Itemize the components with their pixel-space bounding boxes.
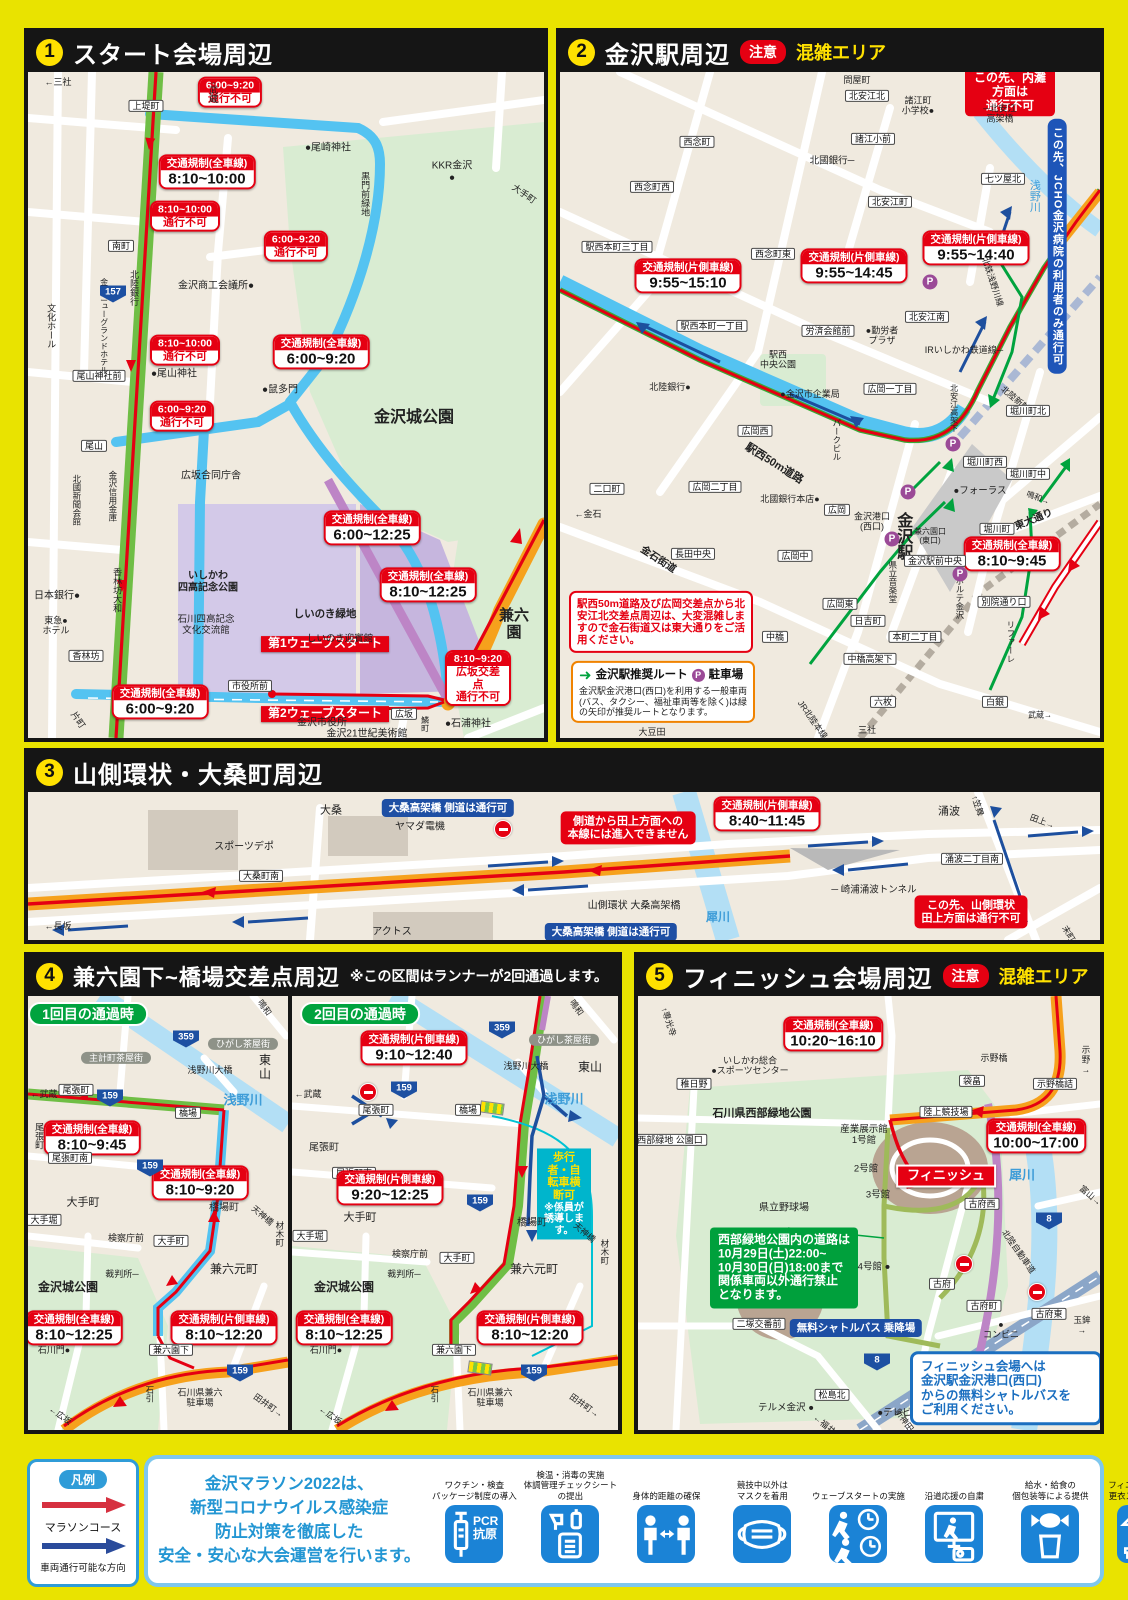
road-sign: 大桑町南 xyxy=(239,870,283,882)
place-label-rotated: 東大通り xyxy=(1013,507,1054,533)
place-label: アクトス xyxy=(372,926,412,938)
place-label-rotated: 武蔵→ xyxy=(1028,710,1052,719)
road-sign: 広岡中 xyxy=(777,550,812,562)
road-sign: 袋畠 xyxy=(959,1075,985,1087)
road-sign: 白銀 xyxy=(982,696,1008,708)
panel-number-badge: 2 xyxy=(568,39,595,66)
covid-measures-list: ワクチン・検査 パッケージ制度の導入PCR 抗原検温・消毒の実施 体調管理チェッ… xyxy=(426,1480,1128,1563)
road-sign: 古府 xyxy=(929,1278,955,1290)
regulation-label: 交通規制(片側車線)9:55~14:45 xyxy=(801,248,908,283)
place-label-rotated: 末町 xyxy=(1060,924,1077,940)
crosswalk-icon xyxy=(467,1360,492,1375)
place-label: 石川県兼六 駐車場 xyxy=(177,1388,222,1409)
place-label-vertical: 石引 xyxy=(144,1386,154,1403)
place-label: 東山 xyxy=(254,1054,277,1082)
covid-message: 金沢マラソン2022は、 新型コロナウイルス感染症 防止対策を徹底した 安全・安… xyxy=(158,1473,420,1569)
place-label-rotated: 鳴和 xyxy=(255,998,273,1018)
road-sign: 広岡東 xyxy=(822,598,857,610)
road-sign: 七ツ屋北 xyxy=(981,173,1025,185)
road-sign: 広岡一丁目 xyxy=(863,383,916,395)
regulation-label: 交通規制(全車線)8:10~12:25 xyxy=(380,567,477,602)
road-sign: 別院通り口 xyxy=(977,596,1030,608)
place-label: 石川県兼六 駐車場 xyxy=(467,1388,512,1409)
place-label: 犀川 xyxy=(706,911,730,925)
covid-measure-item: 検温・消毒の実施 体調管理チェックシートの提出 xyxy=(522,1480,618,1563)
road-sign: 上堤町 xyxy=(128,100,163,112)
road-sign: 大手町 xyxy=(439,1252,474,1264)
closure-label: 6:00~9:20通行不可 xyxy=(150,401,214,432)
place-label: 大手町 xyxy=(344,1212,377,1225)
place-label: テルメ金沢 ● xyxy=(758,1404,814,1415)
place-label-rotated: 富山→ xyxy=(1077,1184,1100,1208)
place-label-vertical: 尾張町 xyxy=(34,1123,44,1150)
second-pass-map: 2回目の通過時交通規制(片側車線)9:10~12:40ひがし茶屋街359浅野川大… xyxy=(292,996,618,1430)
area-pill: ひがし茶屋街 xyxy=(529,1034,599,1046)
place-label-rotated: 田井町→ xyxy=(251,1392,284,1420)
closure-label: 8:10~9:20広坂交差点 通行不可 xyxy=(445,650,511,706)
no-entry-icon xyxy=(955,1255,973,1273)
measure-label: ワクチン・検査 パッケージ制度の導入 xyxy=(432,1480,517,1502)
regulation-label: 交通規制(全車線)6:00~9:20 xyxy=(112,684,209,719)
crosswalk-icon xyxy=(479,1100,504,1115)
panel-header: 4 兼六園下~橋場交差点周辺 ※この区間はランナーが2回通過します。 xyxy=(28,956,618,996)
place-label: 大手町 xyxy=(67,1197,100,1210)
place-label: ─北安江 高架橋 xyxy=(983,104,1016,125)
place-label: 北國銀行本店● xyxy=(760,494,819,504)
place-label: 金沢市役所 xyxy=(297,717,347,729)
route-shield: 159 xyxy=(521,1365,547,1382)
panel-header: 5 フィニッシュ会場周辺 注意 混雑エリア xyxy=(638,956,1100,996)
place-label-vertical: 材木町 xyxy=(599,1239,609,1265)
road-sign: 大手町 xyxy=(153,1235,188,1247)
place-label: 山側環状 大桑高架橋 xyxy=(588,900,681,912)
route-shield: 159 xyxy=(227,1365,253,1382)
route-shield: 359 xyxy=(173,1031,199,1048)
area-pill: 主計町茶屋街 xyxy=(81,1052,151,1064)
hospital-access-ribbon: この先、JCHO金沢病院の利用者のみ通行可 xyxy=(1048,119,1067,374)
covid-measures-box: 金沢マラソン2022は、 新型コロナウイルス感染症 防止対策を徹底した 安全・安… xyxy=(144,1455,1104,1587)
route-shield: 159 xyxy=(467,1195,493,1212)
place-label-vertical: 県立音楽堂 xyxy=(887,561,897,604)
place-label: 浅野川大橋 xyxy=(187,1065,232,1075)
parking-icon: P xyxy=(946,437,961,452)
place-label-rotated: ↑笠舞 xyxy=(969,794,985,817)
okuwa-area-map: 大桑高架橋 側道は通行可側道から田上方面への 本線には進入できません交通規制(片… xyxy=(28,792,1100,940)
mask-icon xyxy=(733,1505,791,1563)
measure-label: フィニッシュエリア 更衣スペースの拡大 xyxy=(1108,1480,1128,1502)
place-label: しいのき緑地 xyxy=(294,608,357,620)
regulation-label: 交通規制(全車線)8:10~9:45 xyxy=(964,536,1061,571)
place-label-rotated: 鳴和→ xyxy=(1025,490,1051,507)
measure-label: 給水・給食の 個包装等による提供 xyxy=(1012,1480,1088,1502)
first-pass-map: 1回目の通過時主計町茶屋街359ひがし茶屋街浅野川大橋東山浅野川←武蔵尾張町15… xyxy=(28,996,288,1430)
place-label: 検察庁前 xyxy=(108,1233,144,1243)
place-label-vertical: ↑武蔵 xyxy=(208,81,218,104)
place-label: 大桑 xyxy=(320,805,342,818)
parking-icon: P xyxy=(953,567,968,582)
place-label: KKR金沢 ● xyxy=(432,161,473,184)
place-label-vertical: 浅野川 xyxy=(1028,180,1041,213)
map-annotations: ↑専光寺交通規制(全車線)10:20~16:10いしかわ総合 ●スポーツセンター… xyxy=(638,996,1100,1430)
regulation-label: 交通規制(片側車線)8:10~12:20 xyxy=(171,1310,278,1345)
shuttle-note-box: フィニッシュ会場へは 金沢駅金沢港口(西口) からの無料シャトルバスを ご利用く… xyxy=(910,1351,1100,1425)
station-area-map: この先、内灘方面は 通行不可この先、JCHO金沢病院の利用者のみ通行可交通規制(… xyxy=(560,72,1100,738)
no-entry-icon xyxy=(359,1083,377,1101)
covid-measure-item: 競技中以外は マスクを着用 xyxy=(714,1480,810,1563)
road-sign: 橋場 xyxy=(455,1104,481,1116)
place-label-rotated: 天神橋 xyxy=(249,1204,275,1228)
place-label: 県立野球場 xyxy=(759,1202,809,1214)
road-sign: 大手堀 xyxy=(292,1230,327,1242)
finish-label: フィニッシュ xyxy=(896,1165,996,1188)
place-label-vertical: 文化ホール xyxy=(46,304,56,349)
road-sign: 北安江北 xyxy=(845,90,889,102)
road-sign: 金沢駅前中央 xyxy=(904,555,966,567)
place-label: 橋場町 xyxy=(517,1217,547,1229)
road-sign: 市役所前 xyxy=(228,680,272,692)
place-label: 石川県西部緑地公園 xyxy=(713,1108,812,1121)
place-label: 東山 xyxy=(578,1061,602,1075)
place-label-vertical: リファーレ xyxy=(1005,621,1015,664)
regulation-label: 交通規制(全車線)8:10~9:45 xyxy=(44,1120,141,1155)
recommended-route-legend: ➜金沢駅推奨ルートP駐車場金沢駅金沢港口(西口)を利用する一般車両(バス、タクシ… xyxy=(571,661,755,723)
route-shield: 8 xyxy=(1036,1213,1062,1230)
panel-start-area: 1 スタート会場周辺 xyxy=(24,28,548,742)
regulation-label: 交通規制(全車線)6:00~12:25 xyxy=(324,510,421,545)
place-label-vertical: 石引 xyxy=(429,1386,439,1403)
place-label: 諸江町 小学校● xyxy=(902,96,934,117)
parking-icon: P xyxy=(692,669,705,682)
road-sign: 涌波二丁目南 xyxy=(941,853,1003,865)
panel-number-badge: 5 xyxy=(646,963,673,990)
area-pill: ひがし茶屋街 xyxy=(208,1038,278,1050)
note-box: 駅西50m道路及び広岡交差点から北安江北交差点周辺は、大変混雑しますので金石街道… xyxy=(569,591,753,653)
place-label: 犀川 xyxy=(1009,1169,1035,1184)
place-label-vertical: 北國新聞会館 xyxy=(71,475,81,526)
place-label: 浅野川 xyxy=(544,1093,583,1108)
check-icon xyxy=(541,1505,599,1563)
place-label: ヤマダ電機 xyxy=(395,821,445,833)
panel-title: 山側環状・大桑町周辺 xyxy=(73,755,323,790)
place-label-vertical: 北安江高架下 xyxy=(949,384,958,432)
road-sign: 香林坊 xyxy=(68,650,103,662)
place-label: 広坂合同庁舎 xyxy=(181,470,241,482)
place-label-rotated: 鳴和 xyxy=(567,998,585,1018)
road-sign: 堀川町北 xyxy=(1006,405,1050,417)
place-label: 涌波 xyxy=(938,806,960,819)
regulation-label: 交通規制(片側車線)8:10~12:20 xyxy=(477,1310,584,1345)
regulation-label: 交通規制(全車線)8:10~12:25 xyxy=(28,1310,122,1345)
panel-header: 1 スタート会場周辺 xyxy=(28,32,544,72)
road-sign: 陸上競技場 xyxy=(919,1106,972,1118)
road-sign: 駅西本町三丁目 xyxy=(581,241,652,253)
alert-box: 側道から田上方面への 本線には進入できません xyxy=(561,811,696,844)
place-label: IRいしかわ鉄道線─ xyxy=(925,345,1003,355)
map-annotations: 6:00~9:20通行不可交通規制(全車線)8:10~10:008:10~10:… xyxy=(28,72,544,738)
place-label-vertical: 材木町 xyxy=(274,1221,284,1247)
pass-count-label: 2回目の通過時 xyxy=(300,1002,420,1026)
place-label-rotated: ↑専光寺 xyxy=(659,1006,677,1037)
covid-measure-item: 給水・給食の 個包装等による提供 xyxy=(1002,1480,1098,1563)
regulation-label: 交通規制(片側車線)9:55~15:10 xyxy=(635,258,742,293)
place-label-vertical: 北陸銀行 xyxy=(129,270,139,306)
place-label: 三社 xyxy=(858,725,876,735)
map-annotations: 2回目の通過時交通規制(片側車線)9:10~12:40ひがし茶屋街359浅野川大… xyxy=(292,996,618,1430)
regulation-label: 交通規制(全車線)10:20~16:10 xyxy=(783,1016,883,1051)
place-label: 金沢21世紀美術館 xyxy=(326,728,407,738)
place-label: ●石浦神社 xyxy=(445,718,491,730)
place-label: 兼六園 xyxy=(499,607,529,642)
route-shield: 159 xyxy=(391,1082,417,1099)
place-label: 裁判所─ xyxy=(387,1269,420,1279)
covid-measure-item: ワクチン・検査 パッケージ制度の導入PCR 抗原 xyxy=(426,1480,522,1563)
road-sign: 古府町 xyxy=(966,1300,1001,1312)
place-label: 日本銀行● xyxy=(34,590,80,602)
road-sign: 二塚交番前 xyxy=(732,1318,785,1330)
place-label: ←三社 xyxy=(44,77,71,87)
place-label-rotated: ←広坂 xyxy=(317,1405,344,1428)
place-label: 北國銀行─ xyxy=(810,157,855,168)
place-label: しいのき迎賓館 xyxy=(307,635,373,646)
place-label: 大豆田 xyxy=(638,727,665,737)
place-label: 東急● ホテル xyxy=(42,616,69,637)
road-sign: 堀川町中 xyxy=(1006,468,1050,480)
regulation-label: 交通規制(全車線)8:10~9:20 xyxy=(152,1165,249,1200)
food-icon xyxy=(1021,1505,1079,1563)
place-label: 3号館 xyxy=(866,1191,890,1202)
place-label: 石川門● xyxy=(310,1345,342,1355)
place-label-vertical: 黒門前緑地 xyxy=(360,172,370,217)
road-sign: 六枚 xyxy=(870,696,896,708)
road-sign: 日吉町 xyxy=(850,615,885,627)
info-box-blue: 無料シャトルバス 乗降場 xyxy=(790,1319,922,1337)
panel-number-badge: 3 xyxy=(36,759,63,786)
panel-title: 金沢駅周辺 xyxy=(605,35,730,70)
place-label: いしかわ 四高記念公園 xyxy=(178,571,238,594)
place-label: ● コンビニ xyxy=(983,1320,1019,1341)
course-arrow-icon xyxy=(40,1497,126,1513)
road-sign: 広岡 xyxy=(824,504,850,516)
place-label-vertical: 金沢信用金庫 xyxy=(107,471,117,522)
place-label: 産業展示館 1号館 xyxy=(840,1125,888,1147)
road-sign: 本町二丁目 xyxy=(888,631,941,643)
road-sign: 広岡二丁目 xyxy=(688,481,741,493)
legend-vehicle-label: 車両通行可能な方向 xyxy=(30,1560,136,1574)
map-annotations: 1回目の通過時主計町茶屋街359ひがし茶屋街浅野川大橋東山浅野川←武蔵尾張町15… xyxy=(28,996,288,1430)
place-label-vertical: ポルテ金沢 xyxy=(954,577,964,620)
map-annotations: この先、内灘方面は 通行不可この先、JCHO金沢病院の利用者のみ通行可交通規制(… xyxy=(560,72,1100,738)
alert-box: この先、山側環状 田上方面は通行不可 xyxy=(915,895,1028,928)
place-label-rotated: 田井町→ xyxy=(567,1392,600,1420)
covid-measure-item: フィニッシュエリア 更衣スペースの拡大 xyxy=(1098,1480,1128,1563)
panel-note: ※この区間はランナーが2回通過します。 xyxy=(350,966,608,986)
info-box-green: 西部緑地公園内の道路は 10月29日(土)22:00~ 10月30日(日)18:… xyxy=(710,1228,858,1309)
measure-label: 身体的距離の確保 xyxy=(632,1480,700,1502)
road-sign: 尾山 xyxy=(81,440,107,452)
regulation-label: 交通規制(片側車線)8:40~11:45 xyxy=(714,796,821,831)
regulation-label: 交通規制(片側車線)9:55~14:40 xyxy=(923,230,1030,265)
place-label-vertical: パークビル xyxy=(831,419,841,462)
road-sign: 労済会館前 xyxy=(801,325,854,337)
place-label: ←長坂 xyxy=(44,921,71,931)
panel-number-badge: 4 xyxy=(36,963,63,990)
place-label: ●フォーラス xyxy=(953,487,1006,498)
road-sign: 尾張町南 xyxy=(48,1152,92,1164)
place-label: 尾張町 xyxy=(309,1142,339,1154)
road-sign: 広坂 xyxy=(391,708,417,720)
place-label: ●尾崎神社 xyxy=(305,142,351,154)
place-label-vertical: 香林坊大和 xyxy=(112,568,122,613)
place-label-rotated: 駅西50m道路 xyxy=(743,441,806,487)
no-entry-icon xyxy=(494,820,512,838)
road-sign: 二口町 xyxy=(589,483,624,495)
legend-title: 凡例 xyxy=(59,1470,107,1489)
distance-icon xyxy=(637,1505,695,1563)
road-sign: 大手堀 xyxy=(28,1214,62,1226)
place-label-vertical: 鱗町 xyxy=(420,716,429,732)
place-label: 裁判所─ xyxy=(105,1269,138,1279)
regulation-label: 交通規制(全車線)8:10~10:00 xyxy=(159,154,256,189)
place-label: 金沢城公園 xyxy=(38,1281,98,1295)
road-sign: 駅西本町一丁目 xyxy=(676,320,747,332)
place-label-rotated: 田上→ xyxy=(1028,813,1055,831)
place-label: 石川四高記念 文化交流館 xyxy=(177,615,234,637)
road-sign: 諸江小前 xyxy=(851,133,895,145)
place-label: 金沢城公園 xyxy=(374,409,454,427)
place-label: 浅野川大橋 xyxy=(503,1061,548,1071)
place-label: 金沢城公園 xyxy=(314,1281,374,1295)
panel-finish-area: 5 フィニッシュ会場周辺 注意 混雑エリア xyxy=(634,952,1104,1434)
place-label: ←金石 xyxy=(574,509,601,519)
road-sign: 松島北 xyxy=(814,1389,849,1401)
regulation-label: 交通規制(全車線)6:00~9:20 xyxy=(273,334,370,369)
congestion-badge: 混雑エリア xyxy=(796,39,886,65)
wave-icon xyxy=(829,1505,887,1563)
place-label: スポーツデポ xyxy=(214,841,274,853)
map-annotations: 大桑高架橋 側道は通行可側道から田上方面への 本線には進入できません交通規制(片… xyxy=(28,792,1100,940)
place-label: 金沢港口 (西口) xyxy=(854,512,890,533)
panel-header: 2 金沢駅周辺 注意 混雑エリア xyxy=(560,32,1100,72)
place-label: いしかわ総合 ●スポーツセンター xyxy=(711,1056,788,1077)
area-icon xyxy=(1117,1505,1128,1563)
green-arrow-icon: ➜ xyxy=(579,667,592,684)
parking-icon: P xyxy=(923,275,938,290)
road-sign: 堀川町 xyxy=(979,523,1014,535)
place-label: ●鼠多門 xyxy=(262,384,298,396)
road-sign: 長田中央 xyxy=(671,548,715,560)
panel-kenrokuen-hashiba: 4 兼六園下~橋場交差点周辺 ※この区間はランナーが2回通過します。 xyxy=(24,952,622,1434)
road-sign: 尾張町 xyxy=(358,1104,393,1116)
road-sign: 兼六園下 xyxy=(432,1344,476,1356)
road-sign: 古府西 xyxy=(964,1198,999,1210)
panel-number-badge: 1 xyxy=(36,39,63,66)
road-sign: 西念町西 xyxy=(630,181,674,193)
place-label: 4号館 ● xyxy=(858,1263,891,1274)
pcr-icon: PCR 抗原 xyxy=(445,1505,503,1563)
measure-label: 競技中以外は マスクを着用 xyxy=(737,1480,788,1502)
start-area-map: 6:00~9:20通行不可交通規制(全車線)8:10~10:008:10~10:… xyxy=(28,72,544,738)
place-label: ←武蔵 xyxy=(30,1089,57,1099)
road-sign: 兼六園下 xyxy=(149,1344,193,1356)
road-sign: 西部緑地 公園口 xyxy=(638,1134,707,1146)
caution-badge: 注意 xyxy=(943,964,989,988)
panel-title: 兼六園下~橋場交差点周辺 xyxy=(73,960,340,992)
road-sign: 古府東 xyxy=(1031,1308,1066,1320)
place-label: 玉鉾→ xyxy=(1073,1316,1091,1336)
panel-title: スタート会場周辺 xyxy=(73,35,273,70)
place-label: ●金沢市企業局 xyxy=(780,389,839,399)
closure-label: 8:10~10:00通行不可 xyxy=(150,201,220,232)
road-sign: 橋場 xyxy=(175,1107,201,1119)
place-label: 石川門● xyxy=(38,1345,70,1355)
panel-kanazawa-station: 2 金沢駅周辺 注意 混雑エリア xyxy=(556,28,1104,742)
road-sign: 西念町東 xyxy=(751,248,795,260)
measure-label: 検温・消毒の実施 体調管理チェックシートの提出 xyxy=(522,1480,618,1502)
covid-measure-item: ウェーブスタートの実施 xyxy=(810,1480,906,1563)
no-entry-icon xyxy=(1028,1283,1046,1301)
road-sign: 堀川町西 xyxy=(963,456,1007,468)
place-label: 検察庁前 xyxy=(392,1249,428,1259)
route-shield: 159 xyxy=(97,1090,123,1107)
place-label: ●尾山神社 xyxy=(151,368,197,380)
caution-badge: 注意 xyxy=(740,40,786,64)
place-label-rotated: JR北陸本線 xyxy=(795,699,828,738)
pass-count-label: 1回目の通過時 xyxy=(28,1002,148,1026)
place-label-rotated: 大手町 xyxy=(510,182,538,206)
closure-label: 6:00~9:20通行不可 xyxy=(264,231,328,262)
place-label: 示野橋 xyxy=(980,1053,1007,1063)
regulation-label: 交通規制(片側車線)9:10~12:40 xyxy=(361,1030,468,1065)
place-label-rotated: 北陸自動車道 xyxy=(999,1228,1036,1275)
place-label: 浅野川 xyxy=(223,1094,262,1109)
place-label: 2号館 xyxy=(854,1165,878,1176)
parking-icon: P xyxy=(901,485,916,500)
measure-label: 沿道応援の自粛 xyxy=(925,1480,985,1502)
place-label: ─ 崎浦涌波トンネル xyxy=(831,886,916,897)
map-legend: 凡例 マラソンコース 車両通行可能な方向 xyxy=(27,1459,139,1587)
place-label: 兼六園口 (東口) xyxy=(914,527,946,545)
parking-icon: P xyxy=(885,532,900,547)
place-label: 示野→ xyxy=(1079,1045,1093,1074)
panel-title: フィニッシュ会場周辺 xyxy=(683,959,933,994)
info-box-blue: 大桑高架橋 側道は通行可 xyxy=(382,799,514,817)
finish-area-map: ↑専光寺交通規制(全車線)10:20~16:10いしかわ総合 ●スポーツセンター… xyxy=(638,996,1100,1430)
regulation-label: 交通規制(全車線)10:00~17:00 xyxy=(986,1118,1086,1153)
place-label: 橋場町 xyxy=(209,1202,239,1214)
vehicle-arrow-icon xyxy=(40,1538,126,1554)
road-sign: 中橋 xyxy=(762,631,788,643)
road-sign: 広岡西 xyxy=(737,425,772,437)
place-label-rotated: ←福井 xyxy=(811,1413,837,1430)
place-label: 駅西 中央公園 xyxy=(760,350,796,371)
road-sign: 北安江町 xyxy=(868,196,912,208)
road-sign: 北安江南 xyxy=(905,311,949,323)
tv-icon xyxy=(925,1505,983,1563)
measure-label: ウェーブスタートの実施 xyxy=(812,1480,905,1502)
place-label: ←武蔵 xyxy=(294,1089,321,1099)
place-label: 金沢商工会議所● xyxy=(178,280,254,292)
congestion-badge: 混雑エリア xyxy=(999,963,1089,989)
route-shield: 8 xyxy=(864,1354,890,1371)
regulation-label: 交通規制(片側車線)9:20~12:25 xyxy=(337,1170,444,1205)
legend-course-label: マラソンコース xyxy=(30,1519,136,1535)
place-label: ●勤労者 プラザ xyxy=(866,326,898,347)
traffic-map-poster: { "page": {"bg":"#e9e300","accent_red":"… xyxy=(0,0,1128,1600)
road-sign: 西念町 xyxy=(679,136,714,148)
place-label: 北陸銀行● xyxy=(649,382,690,392)
regulation-label: 交通規制(全車線)8:10~12:25 xyxy=(296,1310,393,1345)
road-sign: 南町 xyxy=(108,240,134,252)
